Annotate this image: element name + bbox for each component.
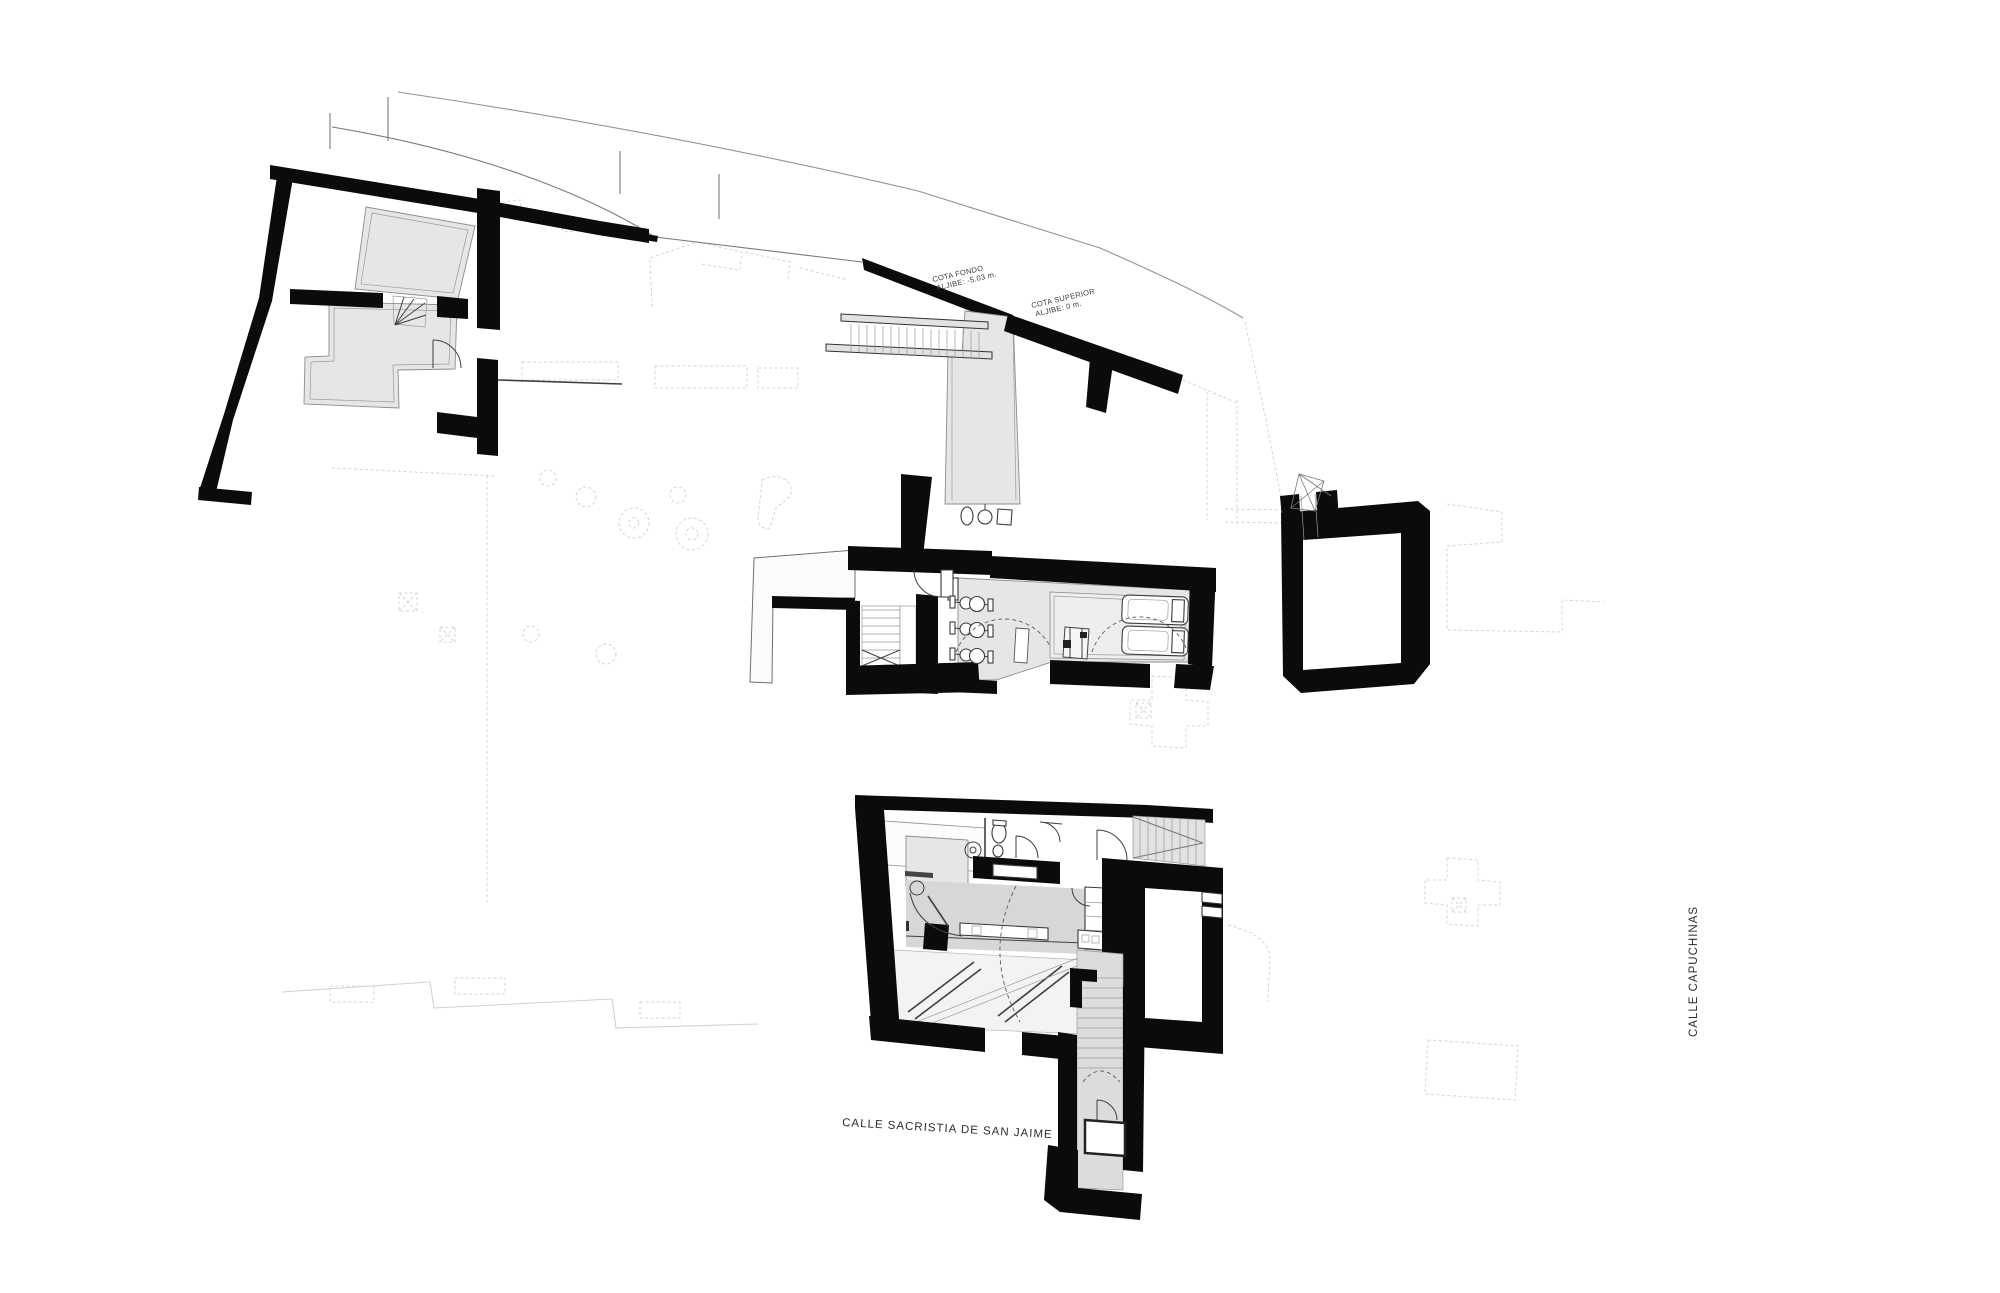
stairwell-central: [862, 606, 916, 668]
retaining-wall-line: [498, 380, 622, 384]
annex-outline: [750, 550, 855, 683]
kitchen-pillar: [923, 923, 949, 951]
massage-lounger: [1122, 595, 1189, 625]
stair-fan-upper: [1097, 816, 1205, 866]
entrance-stair-aljibe: [826, 311, 1183, 525]
exercise-machine: [1063, 627, 1089, 659]
stair-landing-box: [1085, 1120, 1125, 1156]
lower-room-floor: [893, 950, 1085, 1034]
upper-boundary-line: [398, 92, 1243, 318]
room-lower: [304, 302, 457, 408]
floor-plan-sheet: COTA FONDO ALJIBE: -5.03 m. COTA SUPERIO…: [0, 0, 2000, 1293]
survey-ticks: [330, 97, 719, 219]
street-label-east: CALLE CAPUCHINAS: [1688, 906, 1700, 1037]
door-corridor-gym: [914, 570, 953, 597]
building-northwest: [198, 165, 649, 505]
corridor-fixtures: [961, 504, 1012, 525]
massage-lounger-2: [1122, 626, 1189, 656]
entrance-corridor-floor: [945, 311, 1020, 504]
building-south: [855, 795, 1223, 1064]
cota-fondo-note: COTA FONDO ALJIBE: -5.03 m.: [931, 261, 997, 293]
bath-counter: [993, 864, 1037, 879]
floor-plan-canvas: COTA FONDO ALJIBE: -5.03 m. COTA SUPERIO…: [0, 0, 2000, 1293]
street-label-south: CALLE SACRISTIA DE SAN JAIME: [842, 1117, 1053, 1141]
east-room: [1145, 888, 1202, 1022]
building-cistern-east: [1280, 474, 1430, 693]
entrance-walls: [1004, 314, 1183, 413]
cota-superior-note: COTA SUPERIOR ALJIBE: 0 m.: [1030, 286, 1098, 318]
exercise-mat: [1014, 628, 1029, 663]
column-cross-marks: [399, 593, 455, 642]
building-central-spa: [750, 474, 1216, 695]
